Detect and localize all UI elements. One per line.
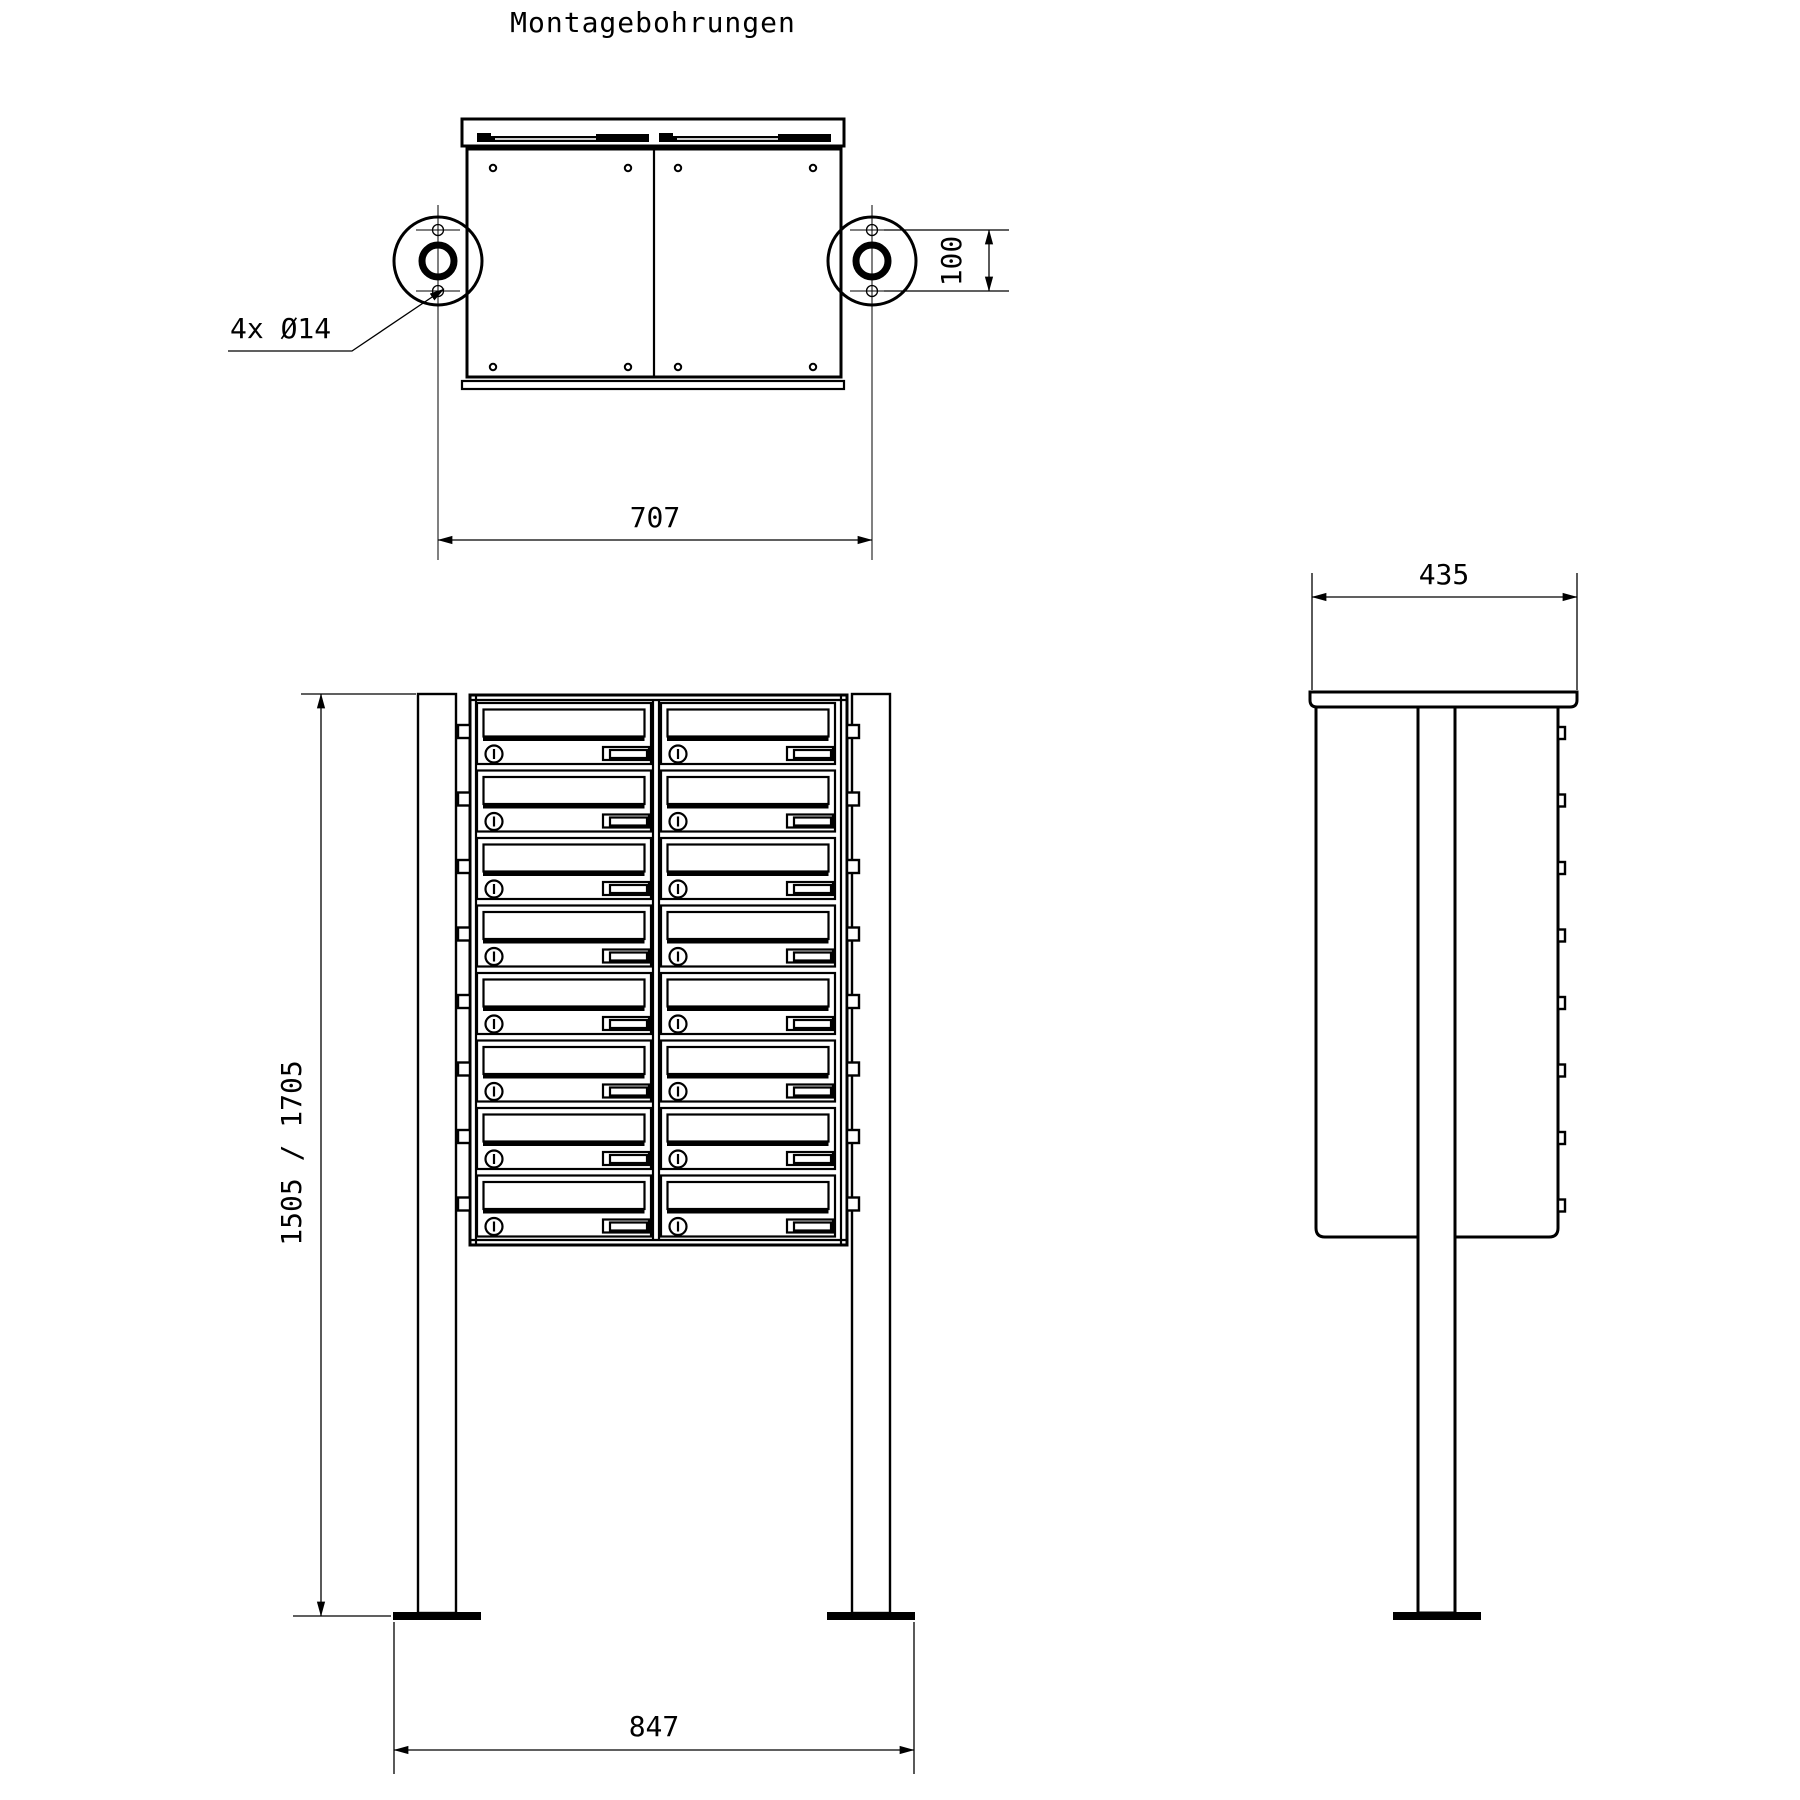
technical-drawing-page: Montagebohrungen <box>0 0 1800 1800</box>
right-base-plate <box>827 1612 915 1620</box>
fixing-tab <box>847 995 859 1008</box>
dimension-depth-value: 435 <box>1419 558 1470 591</box>
dimension-depth: 435 <box>1312 558 1577 690</box>
letter-slot-right <box>659 133 831 142</box>
fixing-tab <box>458 1130 470 1143</box>
fixing-tab <box>847 1130 859 1143</box>
hole-callout-label: 4x Ø14 <box>230 312 331 345</box>
dimension-hole-spacing: 100 <box>884 230 1009 291</box>
hinge-tab <box>1558 862 1565 874</box>
left-base-plate <box>393 1612 481 1620</box>
hinge-tab <box>1558 997 1565 1009</box>
mailbox-technical-drawing: Montagebohrungen <box>0 0 1800 1800</box>
top-view-bottom-lip <box>462 381 844 389</box>
left-post-flange <box>394 205 482 560</box>
hole-callout: 4x Ø14 <box>228 289 444 351</box>
fixing-tab <box>458 1063 470 1076</box>
dimension-total-height-value: 1505 / 1705 <box>275 1060 308 1245</box>
dimension-base-width: 847 <box>394 1622 914 1774</box>
letter-slot-left <box>477 133 649 142</box>
top-view: Montagebohrungen <box>228 6 1009 560</box>
hinge-tab <box>1558 1065 1565 1077</box>
dimension-total-height: 1505 / 1705 <box>275 694 416 1616</box>
hinge-tab <box>1558 1132 1565 1144</box>
fixing-tab <box>847 928 859 941</box>
dimension-base-width-value: 847 <box>629 1710 680 1743</box>
left-post <box>418 694 456 1613</box>
dimension-hole-spacing-value: 100 <box>935 236 968 287</box>
hinge-tab <box>1558 727 1565 739</box>
dimension-mounting-width: 707 <box>438 501 872 540</box>
fixing-tab <box>458 860 470 873</box>
hinge-tab <box>1558 930 1565 942</box>
right-post <box>852 694 890 1613</box>
fixing-tab <box>847 725 859 738</box>
fixing-tab <box>458 995 470 1008</box>
side-base-plate <box>1393 1612 1481 1620</box>
fixing-tab <box>847 1198 859 1211</box>
fixing-tab <box>847 860 859 873</box>
side-roof <box>1310 692 1577 707</box>
front-view: 1505 / 1705 847 <box>275 694 915 1774</box>
fixing-tab <box>847 793 859 806</box>
dimension-mounting-width-value: 707 <box>630 501 681 534</box>
fixing-tab <box>458 928 470 941</box>
hinge-tab <box>1558 795 1565 807</box>
fixing-tab <box>847 1063 859 1076</box>
fixing-tab <box>458 1198 470 1211</box>
side-post <box>1418 706 1455 1613</box>
hinge-tab <box>1558 1200 1565 1212</box>
side-view: 435 <box>1310 558 1577 1620</box>
fixing-tab <box>458 725 470 738</box>
fixing-tab <box>458 793 470 806</box>
page-title: Montagebohrungen <box>510 6 796 39</box>
